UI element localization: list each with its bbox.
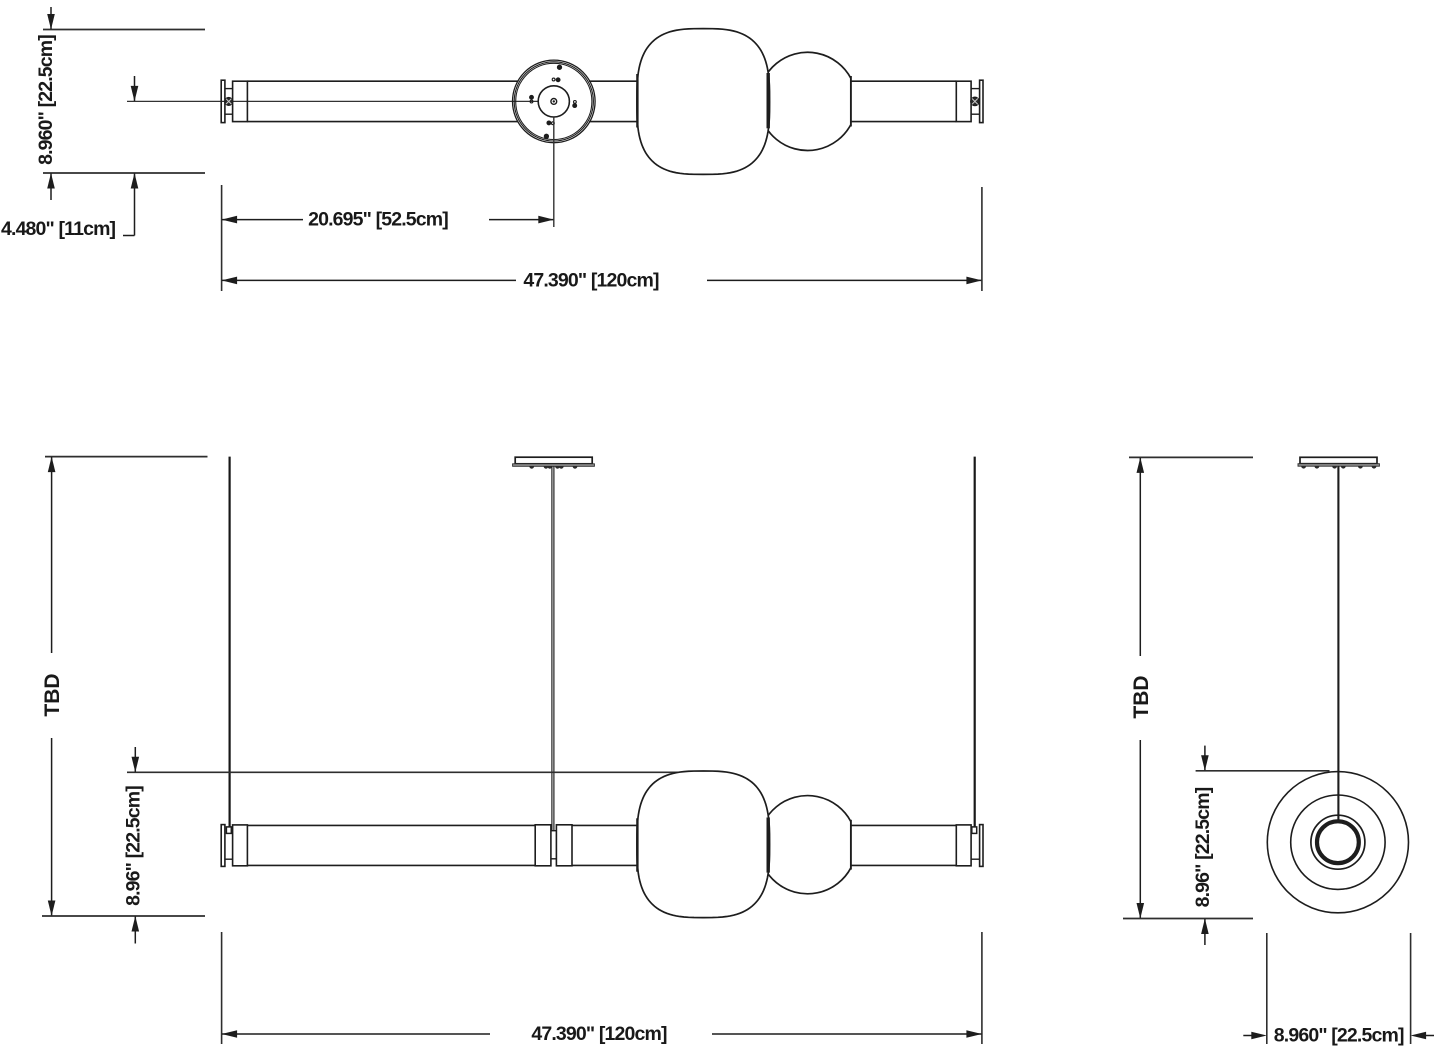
svg-text:8.96" [22.5cm]: 8.96" [22.5cm] (1192, 787, 1214, 907)
svg-text:47.390" [120cm]: 47.390" [120cm] (531, 1023, 667, 1045)
svg-text:TBD: TBD (1130, 675, 1153, 718)
svg-text:TBD: TBD (41, 673, 64, 716)
svg-text:4.480" [11cm]: 4.480" [11cm] (1, 218, 116, 240)
svg-text:47.390" [120cm]: 47.390" [120cm] (523, 269, 659, 291)
svg-text:8.960" [22.5cm]: 8.960" [22.5cm] (1274, 1025, 1404, 1047)
svg-text:8.96" [22.5cm]: 8.96" [22.5cm] (123, 786, 145, 906)
svg-text:20.695" [52.5cm]: 20.695" [52.5cm] (308, 209, 448, 231)
svg-text:8.960" [22.5cm]: 8.960" [22.5cm] (35, 35, 57, 165)
